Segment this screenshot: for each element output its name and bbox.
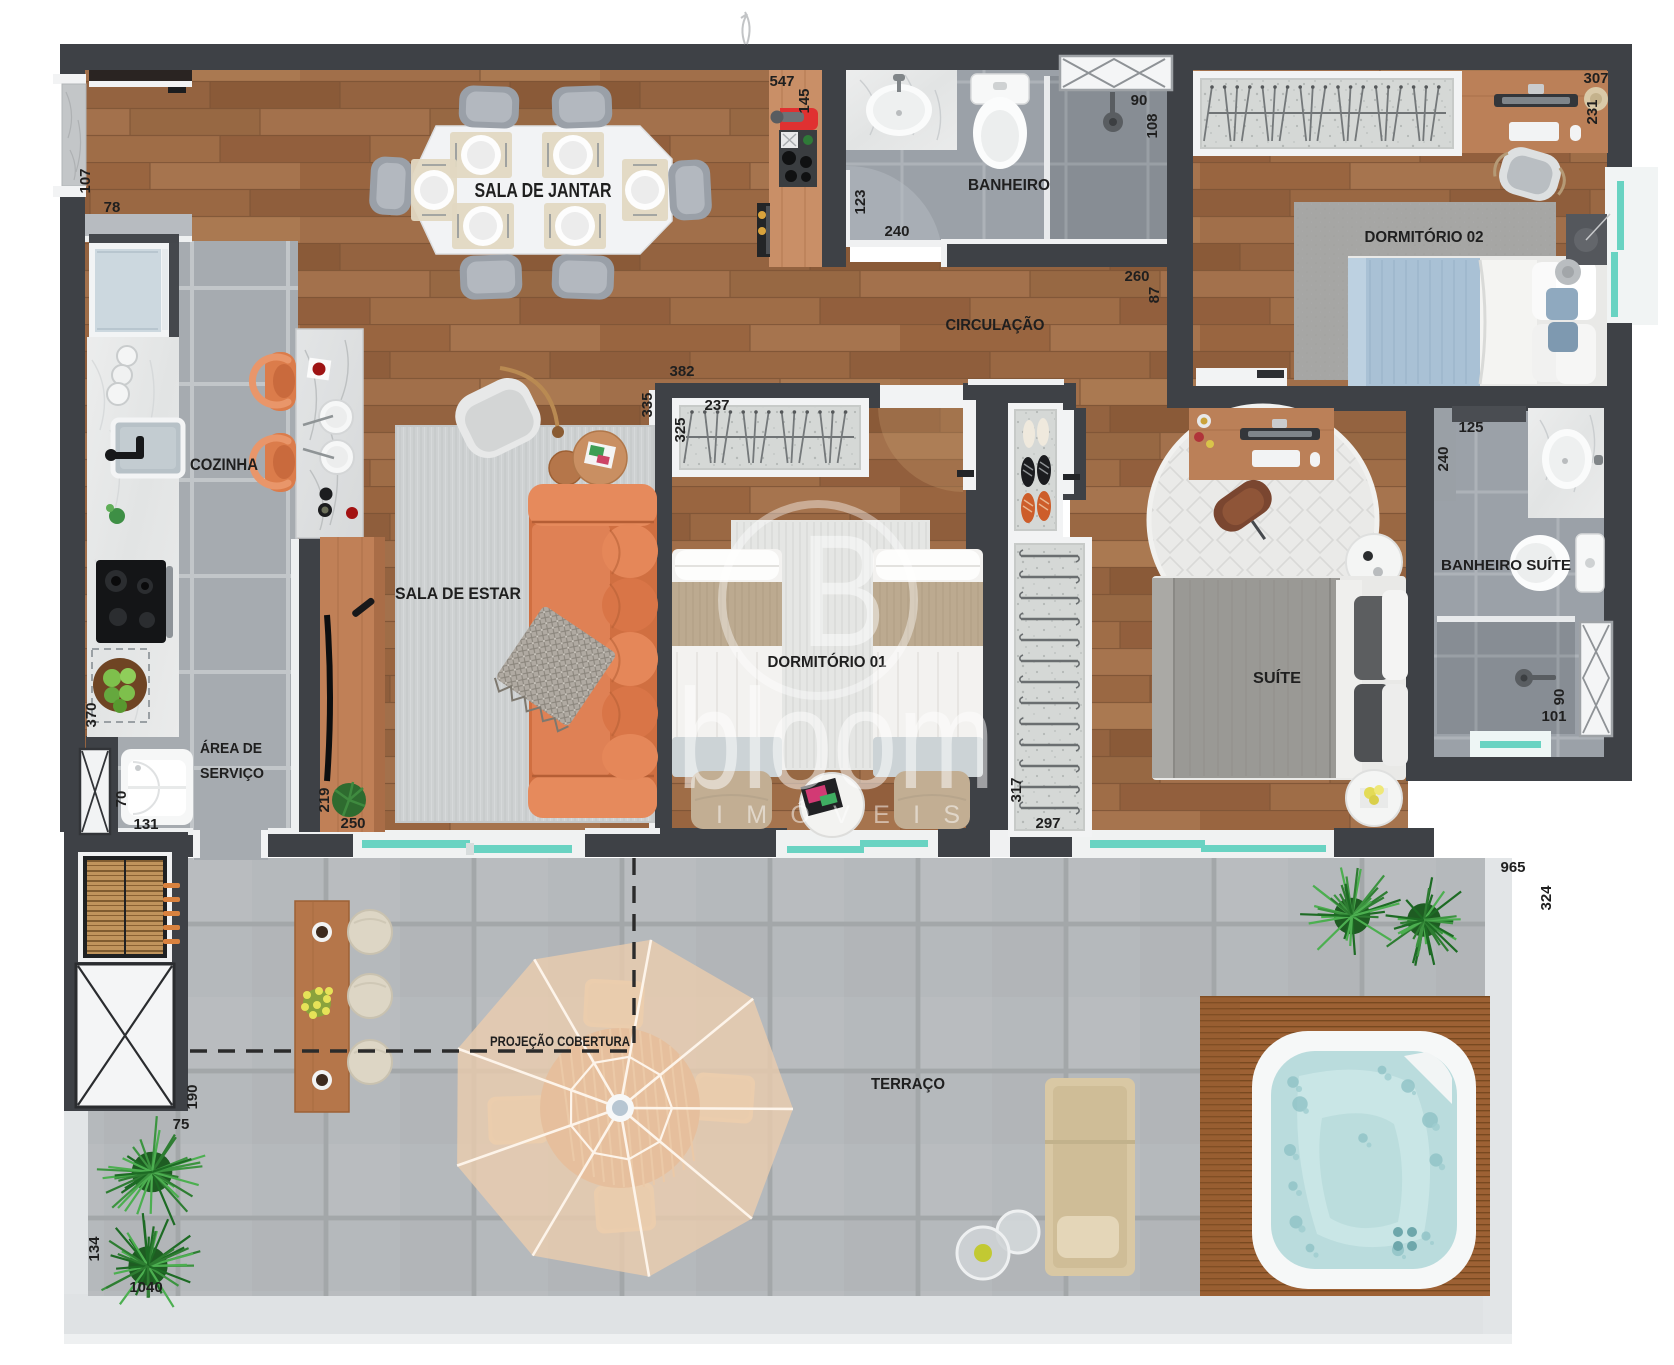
svg-text:BANHEIRO SUÍTE: BANHEIRO SUÍTE (1441, 557, 1571, 574)
svg-text:PROJEÇÃO COBERTURA: PROJEÇÃO COBERTURA (490, 1032, 630, 1049)
svg-text:COZINHA: COZINHA (190, 455, 258, 474)
svg-text:307: 307 (1583, 70, 1608, 87)
svg-text:324: 324 (1538, 885, 1555, 911)
svg-text:DORMITÓRIO 02: DORMITÓRIO 02 (1365, 227, 1484, 246)
svg-text:70: 70 (113, 791, 130, 808)
svg-text:547: 547 (769, 73, 794, 90)
svg-text:75: 75 (173, 1116, 190, 1133)
svg-text:101: 101 (1541, 708, 1566, 725)
svg-text:CIRCULAÇÃO: CIRCULAÇÃO (946, 314, 1045, 334)
svg-text:B: B (800, 501, 886, 680)
svg-text:131: 131 (133, 816, 158, 833)
svg-text:bloom: bloom (677, 660, 995, 819)
svg-text:190: 190 (184, 1084, 201, 1109)
svg-text:SUÍTE: SUÍTE (1253, 668, 1301, 687)
svg-text:240: 240 (884, 223, 909, 240)
svg-text:297: 297 (1035, 815, 1060, 832)
svg-text:335: 335 (639, 392, 656, 417)
svg-text:78: 78 (104, 199, 121, 216)
svg-text:965: 965 (1500, 859, 1525, 876)
svg-text:SALA DE JANTAR: SALA DE JANTAR (475, 180, 612, 202)
svg-text:237: 237 (704, 397, 729, 414)
svg-text:145: 145 (796, 88, 813, 113)
svg-text:219: 219 (316, 787, 333, 812)
svg-text:SALA DE ESTAR: SALA DE ESTAR (395, 584, 521, 603)
svg-text:240: 240 (1435, 446, 1452, 471)
svg-text:250: 250 (340, 815, 365, 832)
svg-text:ÁREA DE: ÁREA DE (200, 740, 262, 757)
svg-text:1040: 1040 (129, 1279, 162, 1296)
svg-text:134: 134 (86, 1236, 103, 1262)
svg-text:108: 108 (1144, 113, 1161, 138)
svg-text:231: 231 (1584, 99, 1601, 124)
svg-text:382: 382 (669, 363, 694, 380)
svg-text:325: 325 (672, 417, 689, 442)
svg-text:87: 87 (1146, 287, 1163, 304)
svg-text:90: 90 (1551, 689, 1568, 706)
svg-text:125: 125 (1458, 419, 1483, 436)
svg-text:317: 317 (1008, 777, 1025, 802)
svg-text:TERRAÇO: TERRAÇO (871, 1076, 945, 1093)
svg-text:370: 370 (83, 702, 100, 727)
svg-text:90: 90 (1131, 92, 1148, 109)
svg-text:SERVIÇO: SERVIÇO (200, 766, 264, 782)
svg-text:123: 123 (852, 189, 869, 214)
svg-text:107: 107 (77, 168, 94, 193)
svg-text:260: 260 (1124, 268, 1149, 285)
svg-text:BANHEIRO: BANHEIRO (968, 177, 1050, 194)
